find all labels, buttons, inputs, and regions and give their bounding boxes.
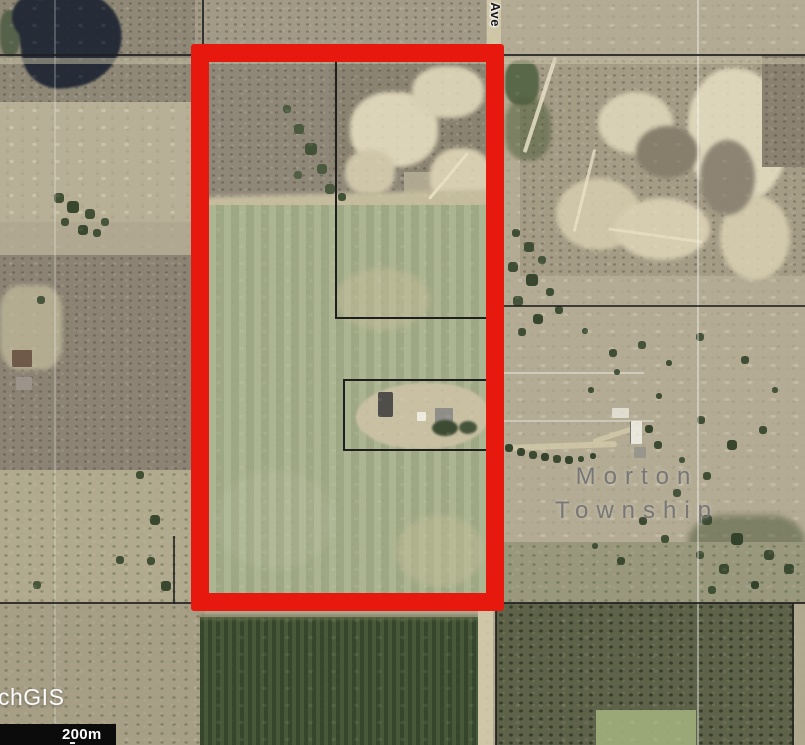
terrain-top-strip (195, 0, 487, 48)
aerial-map[interactable]: n Ave Morton Township chGIS 200m (0, 0, 805, 745)
field-line (504, 372, 644, 374)
section-line-vertical-left (173, 536, 175, 604)
outbuilding-left (16, 377, 32, 390)
section-line-horizontal-mid (504, 305, 805, 307)
grid-line-white-east (697, 0, 699, 745)
pit-dark-patch (636, 126, 698, 178)
section-line-vertical-east (792, 603, 794, 745)
conifers-in-parcel (0, 0, 2, 2)
township-label-line2: Township (538, 494, 736, 528)
pit-sand (615, 198, 710, 260)
gis-watermark: chGIS (0, 684, 64, 711)
rfarm-shed (612, 408, 629, 418)
pit-dark-patch (700, 140, 755, 215)
township-label: Morton Township (538, 460, 736, 528)
tree-clump (505, 98, 551, 160)
scale-tick (70, 742, 75, 744)
road-label: n Ave (481, 0, 503, 122)
parcel-highlight-outline (191, 44, 504, 611)
township-label-line1: Morton (538, 460, 736, 494)
field-left (0, 102, 195, 222)
field-bottom-right (596, 710, 696, 745)
section-line-vertical-road (495, 611, 497, 745)
rfarm-barn (630, 421, 642, 444)
rfarm-building (634, 447, 646, 458)
plantation-edge (200, 614, 478, 620)
road-south-segment (478, 611, 493, 745)
scale-bar: 200m (0, 724, 116, 745)
house-left-roof (12, 350, 32, 367)
grid-line-white-west (54, 0, 56, 745)
open-lower-left (0, 470, 195, 605)
brush-low-right (504, 542, 805, 605)
edge-column-right (794, 603, 805, 745)
pine-plantation (200, 617, 478, 745)
scale-label: 200m (0, 724, 116, 745)
edge-woods-right (762, 55, 805, 167)
